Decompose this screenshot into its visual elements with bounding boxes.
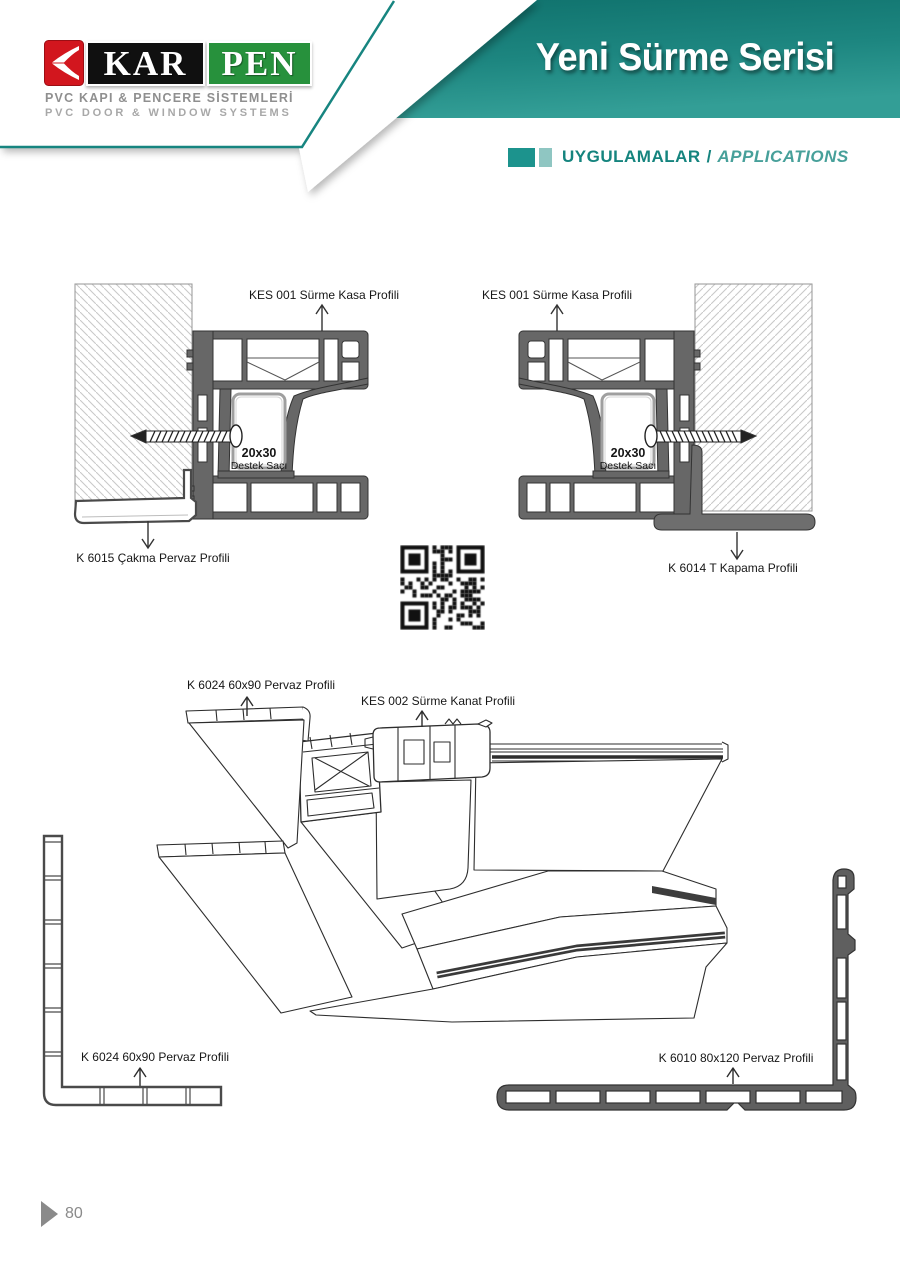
- leader-arrow: [134, 1068, 146, 1087]
- section-divider: /: [707, 147, 712, 167]
- cross-section-right: [519, 284, 815, 559]
- label-frame-right: KES 001 Sürme Kasa Profili: [482, 288, 632, 302]
- brand-tagline-en: PVC DOOR & WINDOW SYSTEMS: [45, 107, 315, 119]
- section-square-light: [539, 148, 552, 167]
- casing-board-top: [186, 707, 310, 848]
- series-title: Yeni Sürme Serisi: [513, 36, 857, 80]
- leader-arrow: [727, 1068, 739, 1084]
- leader-arrow: [416, 711, 428, 727]
- page-number: 80: [65, 1205, 83, 1223]
- label-support-left: 20x30 Destek Sacı: [231, 446, 288, 472]
- casing-board-bottom: [157, 841, 352, 1013]
- brand-tagline-tr: PVC KAPI & PENCERE SİSTEMLERİ: [45, 91, 315, 105]
- section-title-tr: UYGULAMALAR: [562, 147, 701, 167]
- label-casing-right: K 6010 80x120 Pervaz Profili: [659, 1051, 814, 1065]
- sash-block: [365, 719, 492, 782]
- leader-arrow: [142, 521, 154, 548]
- frame-block: [299, 733, 381, 822]
- label-frame-left: KES 001 Sürme Kasa Profili: [249, 288, 399, 302]
- label-casing-bottom: K 6024 60x90 Pervaz Profili: [81, 1050, 229, 1064]
- technical-drawings: [0, 0, 900, 1273]
- label-cap-k6014: K 6014 T Kapama Profili: [668, 561, 798, 575]
- iso-corner-drawing: [134, 697, 739, 1087]
- label-casing-top: K 6024 60x90 Pervaz Profili: [187, 678, 335, 692]
- section-square-dark: [508, 148, 535, 167]
- cross-section-left: [75, 284, 368, 548]
- page-number-arrow-icon: [41, 1201, 58, 1227]
- leader-arrow: [551, 305, 563, 331]
- qr-code: [400, 545, 485, 630]
- logo-kar: KAR: [86, 41, 205, 86]
- logo-pen: PEN: [207, 41, 312, 86]
- leader-arrow: [316, 305, 328, 331]
- catalog-page: KAR PEN PVC KAPI & PENCERE SİSTEMLERİ PV…: [0, 0, 900, 1273]
- leader-arrow: [731, 532, 743, 559]
- karpen-logo-mark: [44, 40, 84, 86]
- rails: [490, 744, 723, 752]
- sash-panel: [474, 759, 722, 871]
- label-support-right: 20x30 Destek Sacı: [600, 446, 657, 472]
- label-trim-k6015: K 6015 Çakma Pervaz Profili: [76, 551, 229, 565]
- section-title-en: APPLICATIONS: [717, 147, 848, 167]
- section-header: UYGULAMALAR / APPLICATIONS: [508, 147, 849, 167]
- label-sash-kes002: KES 002 Sürme Kanat Profili: [361, 694, 515, 708]
